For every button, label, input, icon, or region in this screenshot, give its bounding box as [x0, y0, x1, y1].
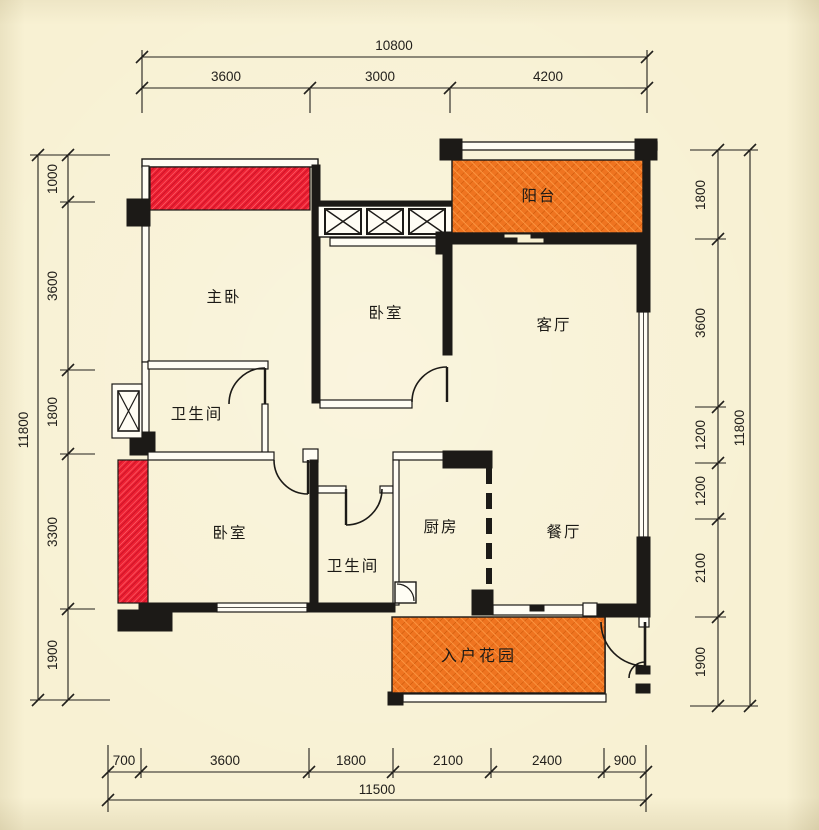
dim-top-seg-2: 4200	[533, 69, 563, 84]
label-entry-garden: 入户花园	[441, 647, 517, 665]
flue-strip	[318, 201, 452, 237]
label-master-bedroom: 主卧	[206, 288, 241, 306]
dim-left-seg-4: 1900	[45, 640, 60, 670]
dim-top-total: 10800	[375, 38, 413, 53]
dim-bottom-seg-5: 900	[614, 753, 637, 768]
door-bathroom-second	[346, 489, 382, 525]
dimension-bottom	[102, 745, 652, 812]
floor-plan-page: 主卧 卧室 客厅 阳台 卫生间 卧室 卫生间 厨房 餐厅 入户花园 10800 …	[0, 0, 819, 830]
dim-right-total: 11800	[732, 410, 747, 447]
dim-left-seg-2: 1800	[45, 397, 60, 427]
dim-right-seg-3: 1200	[693, 476, 708, 506]
dim-bottom-total: 11500	[359, 782, 396, 797]
door-bedroom-left	[274, 460, 308, 494]
door-kitchen	[395, 582, 416, 603]
dim-top-seg-0: 3600	[211, 69, 241, 84]
dim-right-seg-0: 1800	[693, 180, 708, 210]
dim-bottom-seg-0: 700	[113, 753, 136, 768]
dim-bottom-seg-2: 1800	[336, 753, 366, 768]
label-living-room: 客厅	[536, 316, 571, 334]
door-bedroom-top	[412, 367, 447, 402]
dim-left-total: 11800	[16, 412, 31, 449]
dim-bottom-seg-3: 2100	[433, 753, 463, 768]
dim-left-seg-1: 3600	[45, 271, 60, 301]
dim-left-seg-3: 3300	[45, 517, 60, 547]
door-bathroom-main	[229, 368, 265, 404]
dimension-left	[30, 149, 110, 706]
dim-right-seg-4: 2100	[693, 553, 708, 583]
dim-right-seg-2: 1200	[693, 420, 708, 450]
dim-left-seg-0: 1000	[45, 164, 60, 194]
label-bedroom-top: 卧室	[368, 304, 403, 322]
floor-plan-drawing: 主卧 卧室 客厅 阳台 卫生间 卧室 卫生间 厨房 餐厅 入户花园 10800 …	[0, 0, 819, 830]
dim-bottom-seg-1: 3600	[210, 753, 240, 768]
bay-window-master-red	[150, 167, 310, 210]
bay-window-bedroom-red	[118, 460, 148, 603]
label-balcony: 阳台	[521, 187, 556, 205]
dim-bottom-seg-4: 2400	[532, 753, 562, 768]
dim-right-seg-5: 1900	[693, 647, 708, 677]
label-kitchen: 厨房	[423, 518, 458, 536]
label-bathroom-second: 卫生间	[327, 557, 380, 575]
label-bathroom-main: 卫生间	[171, 405, 224, 423]
label-dining-room: 餐厅	[546, 523, 581, 541]
label-bedroom-left: 卧室	[212, 524, 247, 542]
dim-right-seg-1: 3600	[693, 308, 708, 338]
dim-top-seg-1: 3000	[365, 69, 395, 84]
